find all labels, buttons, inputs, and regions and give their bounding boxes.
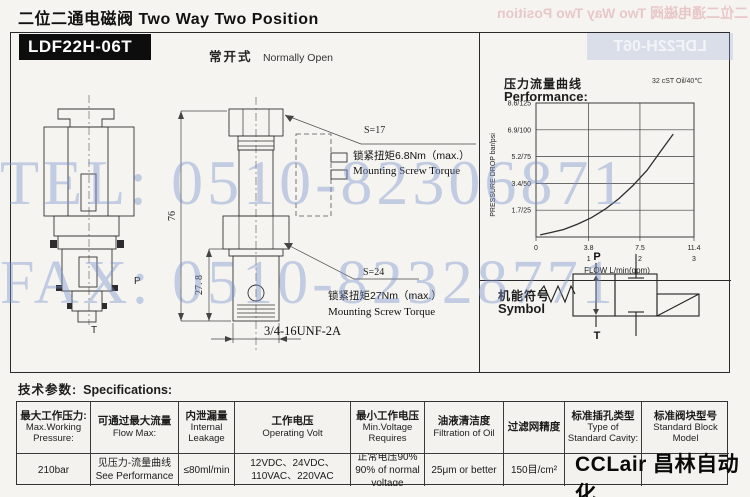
arrowhead: [206, 249, 212, 257]
cclair-logo: CCLair 昌林自动化: [575, 448, 750, 497]
thread-spec-label: 3/4-16UNF-2A: [264, 324, 341, 338]
specs-header-block-model: 标准阀块型号 Standard Block Model: [642, 402, 729, 454]
specs-value-operating-volt: 12VDC、24VDC、 110VAC、220VAC: [235, 454, 351, 486]
bottom-tip: [78, 311, 96, 322]
arrowhead: [178, 111, 184, 119]
torque1-label-en: Mounting Screw Torque: [353, 165, 460, 177]
armature: [81, 174, 96, 211]
specs-title-en: Specifications:: [83, 383, 172, 397]
top-plug: [58, 109, 114, 127]
poppet: [79, 257, 97, 287]
y-tick-label: 3.4/50: [512, 181, 532, 188]
specs-header-flow-max: 可通过最大流量 Flow Max:: [91, 402, 179, 454]
y-tick-label: 8.6/125: [508, 101, 531, 108]
specs-value-min-voltage: 正常电压90% 90% of normal voltage: [351, 454, 425, 486]
specs-header-max-pressure: 最大工作压力: Max.Working Pressure:: [17, 402, 91, 454]
specs-header-operating-volt: 工作电压 Operating Volt: [235, 402, 351, 454]
specs-header-cavity-type: 标准插孔类型 Type of Standard Cavity:: [565, 402, 642, 454]
specs-header-filtration: 油液清洁度 Filtration of Oil: [425, 402, 504, 454]
specs-header-min-voltage: 最小工作电压 Min.Voltage Requires: [351, 402, 425, 454]
specs-section-title: 技术参数:Specifications:: [18, 379, 172, 398]
specs-header-filter-mesh: 过滤网精度: [504, 402, 565, 454]
flow-arrow-down: [593, 309, 599, 315]
pressure-drop-curve: [540, 134, 673, 235]
page-title: 二位二通电磁阀 Two Way Two Position: [18, 5, 319, 29]
valve-mode: 常开式 Normally Open: [209, 46, 333, 66]
valve-external-drawing: 76 27. 8 3/4-16UNF-2A S=17 锁紧扭矩6.8Nm（max…: [151, 89, 486, 369]
seal-left: [56, 285, 62, 291]
mode-label-en: Normally Open: [263, 52, 333, 64]
symbol-port-p-label: P: [593, 251, 600, 263]
datasheet-page: 二位二通电磁阀 Two Way Two Position 二位二通电磁阀 Two…: [0, 0, 750, 497]
specs-header-internal-leakage: 内泄漏量 Internal Leakage: [179, 402, 235, 454]
model-badge: LDF22H-06T: [19, 34, 151, 60]
y-tick-label: 1.7/25: [512, 208, 532, 215]
seal-bottom-right: [102, 303, 107, 309]
arrowhead: [206, 313, 212, 321]
terminal-pin: [331, 153, 347, 162]
seal-right: [112, 285, 118, 291]
hydraulic-symbol: P T: [511, 248, 731, 348]
connector-outline: [296, 134, 331, 216]
specs-value-max-pressure: 210bar: [17, 454, 91, 486]
spring-icon: [538, 286, 575, 302]
content-frame: LDF22H-06T LDF22H-06T 常开式 Normally Open …: [10, 32, 730, 373]
arrowhead: [285, 115, 294, 122]
y-tick-label: 5.2/75: [512, 154, 532, 161]
print-ghost-header: 二位二通电磁阀 Two Way Two Position: [420, 3, 748, 23]
coil-core: [68, 127, 108, 216]
mode-label-zh: 常开式: [209, 50, 253, 64]
s24-leader: [284, 243, 419, 279]
nose-section: [72, 291, 102, 311]
specs-value-filtration: 25μm or better: [425, 454, 504, 486]
specs-value-internal-leakage: ≤80ml/min: [179, 454, 235, 486]
specs-title-zh: 技术参数:: [18, 383, 77, 397]
print-ghost-model-box: LDF22H-06T: [587, 33, 733, 60]
valve-body: [62, 249, 112, 291]
arrowhead: [225, 336, 233, 342]
terminal-pin: [331, 170, 347, 179]
dim-76-label: 76: [167, 211, 178, 221]
s24-label: S=24: [363, 267, 384, 278]
y-tick-label: 6.9/100: [508, 127, 531, 134]
symbol-closed-position-box: [615, 274, 657, 316]
solenoid-diagonal: [657, 294, 699, 316]
oil-condition-note: 32 cST Oil/40℃: [652, 77, 702, 85]
y-axis-label: PRESSURE DROP bar/psi: [490, 133, 497, 217]
torque1-label-zh: 锁紧扭矩6.8Nm（max.）: [353, 149, 470, 162]
o-ring-right: [117, 240, 124, 248]
specs-value-filter-mesh: 150目/cm²: [504, 454, 565, 486]
torque2-label-en: Mounting Screw Torque: [328, 306, 435, 318]
port-t-label: T: [91, 325, 97, 336]
hex-flange: [54, 216, 119, 236]
s17-label: S=17: [364, 125, 385, 136]
plot-border: [536, 103, 694, 237]
dim-278-label: 27. 8: [194, 275, 205, 295]
seal-bottom-left: [67, 303, 72, 309]
torque2-label-zh: 锁紧扭矩27Nm（max.）: [328, 289, 442, 302]
o-ring-left: [50, 240, 57, 248]
body-step: [58, 236, 116, 249]
specs-value-flow-max: 见压力-流量曲线 See Performance: [91, 454, 179, 486]
symbol-port-t-label: T: [594, 330, 601, 342]
flow-arrow-up: [593, 275, 599, 281]
arrowhead: [178, 313, 184, 321]
port-p-label: P: [134, 276, 141, 287]
